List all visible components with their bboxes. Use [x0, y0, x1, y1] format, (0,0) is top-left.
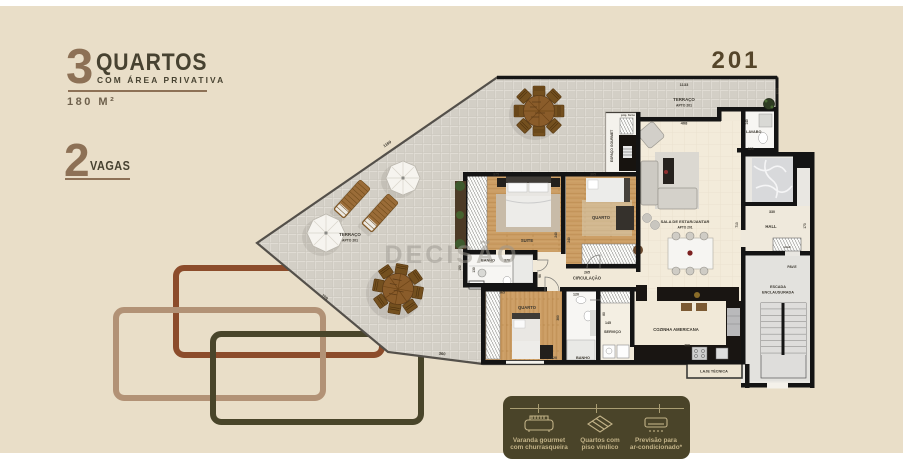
svg-text:TERRAÇO: TERRAÇO [673, 97, 695, 102]
svg-text:ESPAÇO GOURMET: ESPAÇO GOURMET [610, 129, 614, 162]
svg-text:LAVABO: LAVABO [746, 130, 762, 134]
svg-text:HALL: HALL [765, 224, 777, 229]
svg-text:LAJE TÉCNICA: LAJE TÉCNICA [700, 369, 728, 374]
svg-text:SALA DE ESTAR/JANTAR: SALA DE ESTAR/JANTAR [661, 219, 710, 224]
svg-text:ESCADA: ESCADA [770, 285, 786, 289]
svg-text:173: 173 [803, 223, 807, 229]
svg-text:113: 113 [775, 88, 780, 95]
svg-text:265: 265 [584, 271, 590, 275]
svg-text:BANHO: BANHO [576, 356, 590, 360]
svg-text:365: 365 [499, 291, 505, 295]
svg-text:330: 330 [769, 210, 775, 214]
svg-text:375: 375 [493, 173, 499, 177]
svg-text:145: 145 [605, 321, 611, 325]
svg-text:120: 120 [573, 293, 579, 297]
svg-text:240: 240 [554, 232, 558, 238]
svg-text:ENCLAUSURADA: ENCLAUSURADA [762, 291, 794, 295]
svg-text:COZINHA AMERICANA: COZINHA AMERICANA [653, 327, 699, 332]
svg-text:201: 201 [711, 47, 760, 74]
svg-text:220: 220 [551, 356, 557, 360]
svg-text:SUITE: SUITE [521, 238, 534, 243]
svg-text:QUARTO: QUARTO [518, 305, 537, 310]
svg-text:CIRCULAÇÃO: CIRCULAÇÃO [573, 276, 602, 281]
svg-text:713: 713 [735, 222, 739, 228]
svg-text:80: 80 [602, 312, 606, 316]
svg-text:shaft: shaft [783, 245, 790, 249]
svg-text:APTO 201: APTO 201 [677, 226, 692, 230]
svg-text:96: 96 [538, 274, 542, 278]
svg-text:380: 380 [556, 315, 560, 321]
svg-text:PAV.E: PAV.E [787, 265, 797, 269]
svg-text:240: 240 [567, 237, 571, 243]
svg-text:APTO 201: APTO 201 [342, 239, 358, 243]
svg-text:TERRAÇO: TERRAÇO [339, 232, 361, 237]
svg-text:QUARTO: QUARTO [592, 215, 611, 220]
svg-text:305: 305 [590, 173, 596, 177]
svg-text:400: 400 [684, 344, 690, 348]
svg-text:408: 408 [681, 121, 688, 126]
svg-text:DECISÃO: DECISÃO [385, 239, 520, 269]
svg-text:proj. forno: proj. forno [621, 113, 635, 117]
svg-text:APTO 201: APTO 201 [676, 104, 692, 108]
svg-text:120: 120 [748, 147, 754, 151]
svg-text:1133: 1133 [680, 82, 689, 87]
svg-text:140: 140 [745, 119, 749, 125]
svg-text:SERVIÇO: SERVIÇO [604, 330, 621, 334]
svg-text:1189: 1189 [382, 139, 393, 148]
